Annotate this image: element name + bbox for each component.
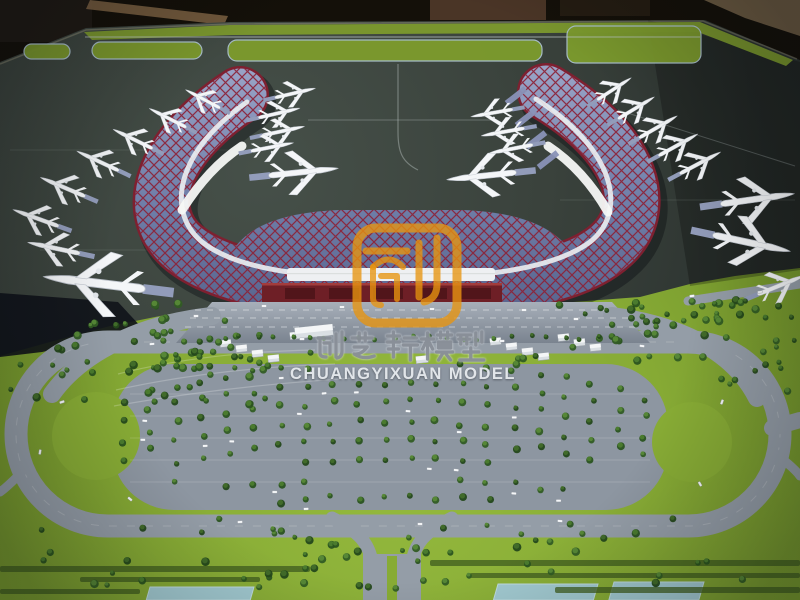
model-scene: CHUANGYIXUAN MODEL — [0, 0, 800, 600]
photo-vignette — [0, 0, 800, 600]
airport-model-photo: CHUANGYIXUAN MODEL — [0, 0, 800, 600]
